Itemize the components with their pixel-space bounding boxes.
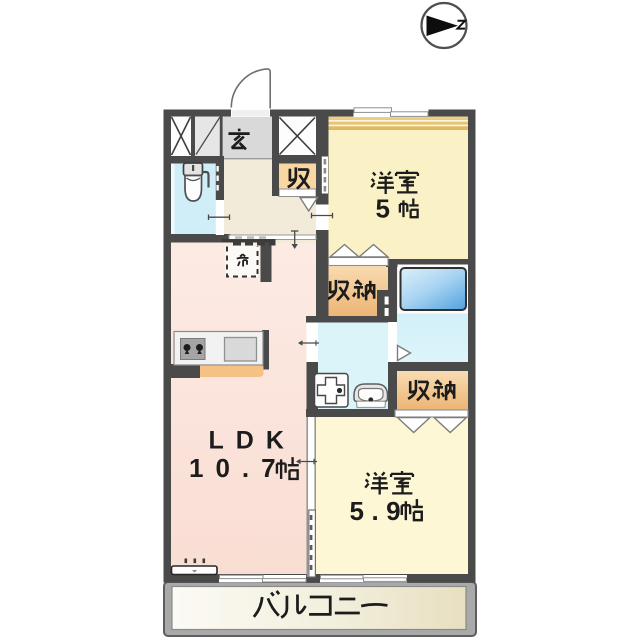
svg-text:5.9: 5.9 <box>350 496 409 526</box>
svg-text:5: 5 <box>376 194 390 224</box>
svg-text:LDK: LDK <box>209 427 296 455</box>
svg-text:10.7: 10.7 <box>189 453 288 483</box>
